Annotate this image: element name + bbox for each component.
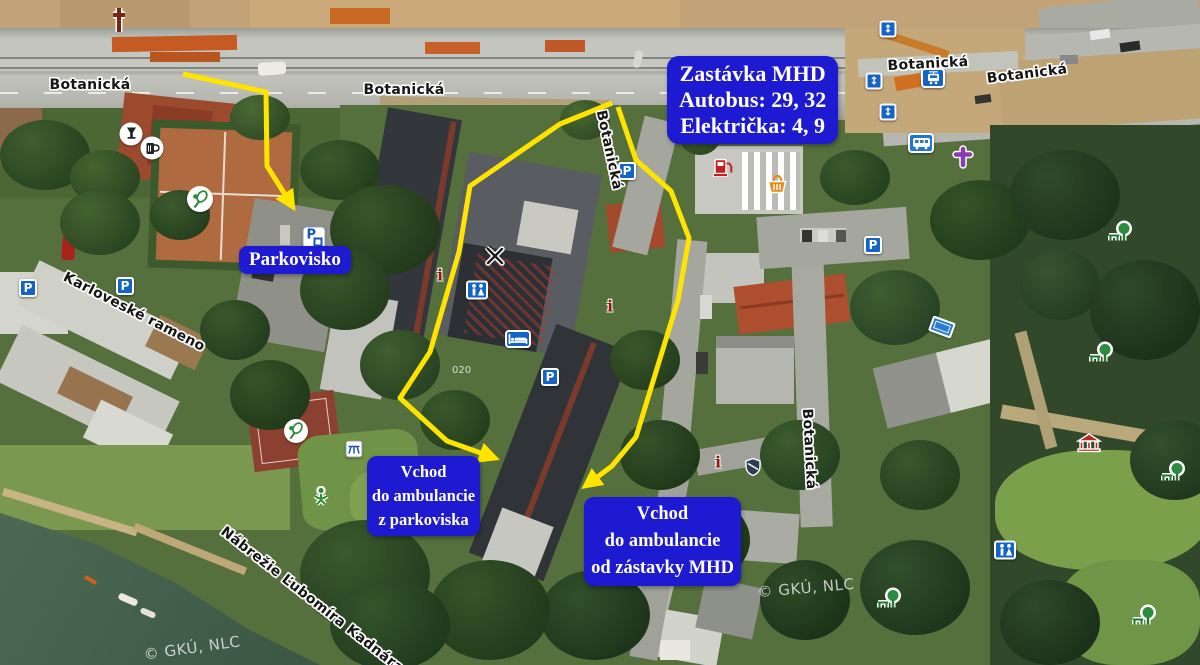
- restroom-icon: [466, 281, 488, 300]
- street-label-botanicka: Botanická: [50, 77, 131, 93]
- callout-parking-label: Parkovisko: [249, 248, 341, 272]
- callout-entrance-parking-line2: do ambulancie: [369, 484, 478, 508]
- parking-icon: P: [19, 279, 37, 297]
- street-label-botanicka: Botanická: [364, 82, 445, 98]
- park-icon: [1086, 341, 1114, 366]
- tennis-court-icon: [284, 419, 308, 443]
- callout-entrance-from-parking: Vchod do ambulancie z parkoviska: [367, 456, 480, 536]
- underpass-icon: ↕: [880, 104, 897, 121]
- callout-mhd-line2: Autobus: 29, 32: [679, 87, 826, 113]
- parking-icon: P: [864, 236, 882, 254]
- memorial-cross-icon: [951, 145, 975, 169]
- callout-parking: Parkovisko: [239, 246, 351, 274]
- callout-entrance-from-mhd: Vchod do ambulancie od zástavky MHD: [584, 497, 741, 586]
- callout-entrance-parking-line3: z parkoviska: [369, 508, 478, 532]
- info-icon: i: [437, 266, 443, 285]
- building-number: 020: [452, 365, 471, 376]
- picnic-icon: [346, 441, 363, 458]
- hospital-bed-icon: [505, 330, 531, 348]
- info-icon: i: [715, 453, 721, 472]
- callout-mhd-line1: Zastávka MHD: [679, 61, 826, 87]
- underpass-icon: ↕: [866, 73, 883, 90]
- park-icon: [1129, 604, 1157, 629]
- callout-mhd-line3: Električka: 4, 9: [679, 113, 826, 139]
- callout-entrance-mhd-line3: od zástavky MHD: [586, 555, 739, 582]
- sports-field-icon: [928, 315, 956, 338]
- fuel-station-icon: [713, 157, 735, 178]
- park-icon: [874, 587, 902, 612]
- park-icon: [1105, 220, 1133, 245]
- playground-icon: [312, 486, 330, 506]
- bus-icon: [908, 133, 934, 153]
- restaurant-icon: [483, 244, 507, 268]
- tennis-icon: [187, 186, 213, 212]
- info-icon: i: [607, 297, 613, 316]
- parking-icon: P: [541, 368, 559, 386]
- parking-icon: P: [116, 277, 134, 295]
- shield-icon: [745, 458, 761, 477]
- pavilion-icon: [1076, 433, 1102, 453]
- underpass-icon: ↕: [880, 21, 897, 38]
- church-icon: [110, 6, 128, 34]
- callout-entrance-mhd-line1: Vchod: [586, 501, 739, 528]
- callout-entrance-mhd-line2: do ambulancie: [586, 528, 739, 555]
- beer-pub-icon: [141, 137, 164, 160]
- callout-entrance-parking-line1: Vchod: [369, 460, 478, 484]
- wine-bar-icon: [120, 123, 143, 146]
- shopping-basket-icon: [765, 173, 790, 196]
- restroom-icon: [994, 541, 1016, 560]
- aerial-map: P P P P P P i i i ↕ ↕ ↕: [0, 0, 1200, 665]
- park-icon: [1158, 460, 1186, 485]
- callout-mhd-stop: Zastávka MHD Autobus: 29, 32 Električka:…: [667, 56, 838, 144]
